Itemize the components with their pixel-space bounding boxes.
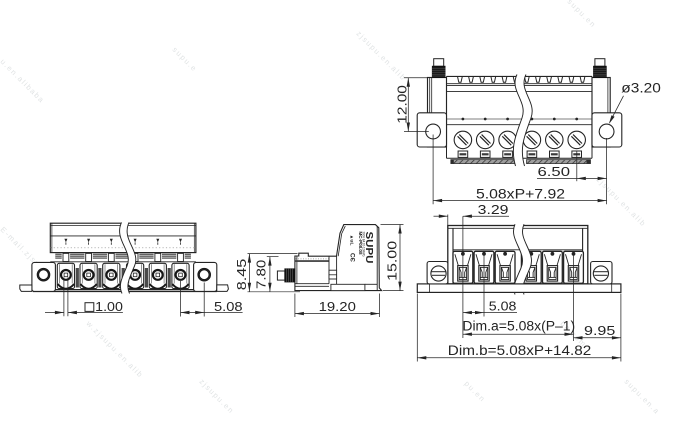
svg-text:Dim.a=5.08x(P–1): Dim.a=5.08x(P–1) [462, 319, 575, 334]
svg-text:12.00: 12.00 [395, 85, 410, 124]
svg-text:1.00: 1.00 [95, 299, 123, 314]
svg-text:CЄ: CЄ [348, 253, 354, 263]
svg-text:9.95: 9.95 [584, 323, 615, 338]
svg-text:6.50: 6.50 [538, 164, 571, 179]
svg-text:ø3.20: ø3.20 [621, 81, 661, 96]
svg-text:Dim.b=5.08xP+14.82: Dim.b=5.08xP+14.82 [448, 343, 591, 358]
svg-text:300V 8A 26-12AWG: 300V 8A 26-12AWG [362, 232, 366, 257]
svg-text:5.08xP+7.92: 5.08xP+7.92 [476, 186, 565, 201]
svg-text:5.08: 5.08 [489, 298, 517, 313]
svg-text:8.45: 8.45 [234, 259, 249, 291]
svg-text:15.00: 15.00 [384, 241, 399, 281]
svg-text:3.29: 3.29 [478, 202, 509, 217]
svg-text:5.08: 5.08 [214, 299, 243, 314]
svg-text:7.80: 7.80 [253, 260, 268, 289]
svg-text:19.20: 19.20 [319, 299, 356, 314]
svg-text:▲uL: ▲uL [348, 235, 354, 246]
